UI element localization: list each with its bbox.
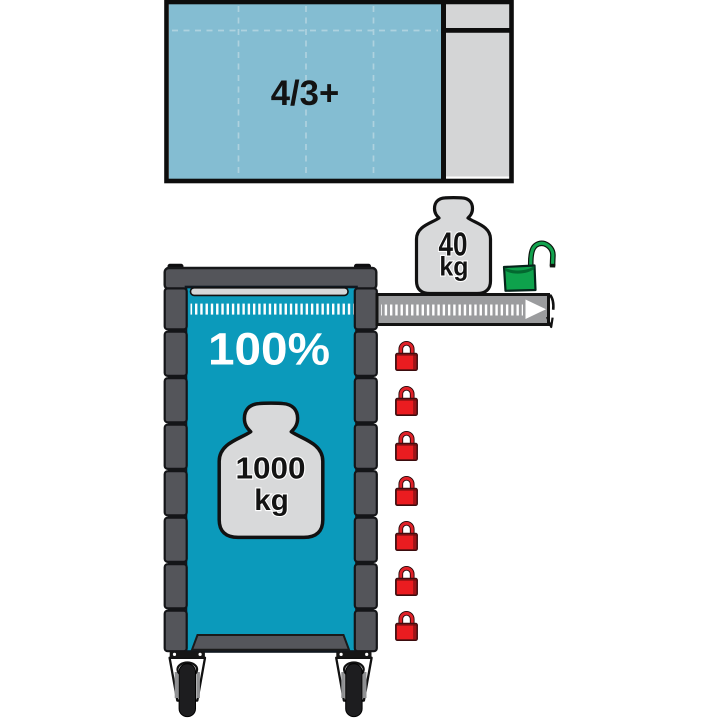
svg-text:1000: 1000 xyxy=(236,452,306,486)
svg-text:4/3+: 4/3+ xyxy=(271,74,340,113)
svg-text:kg: kg xyxy=(439,252,468,282)
svg-text:100%: 100% xyxy=(208,324,330,375)
svg-text:kg: kg xyxy=(254,484,289,517)
